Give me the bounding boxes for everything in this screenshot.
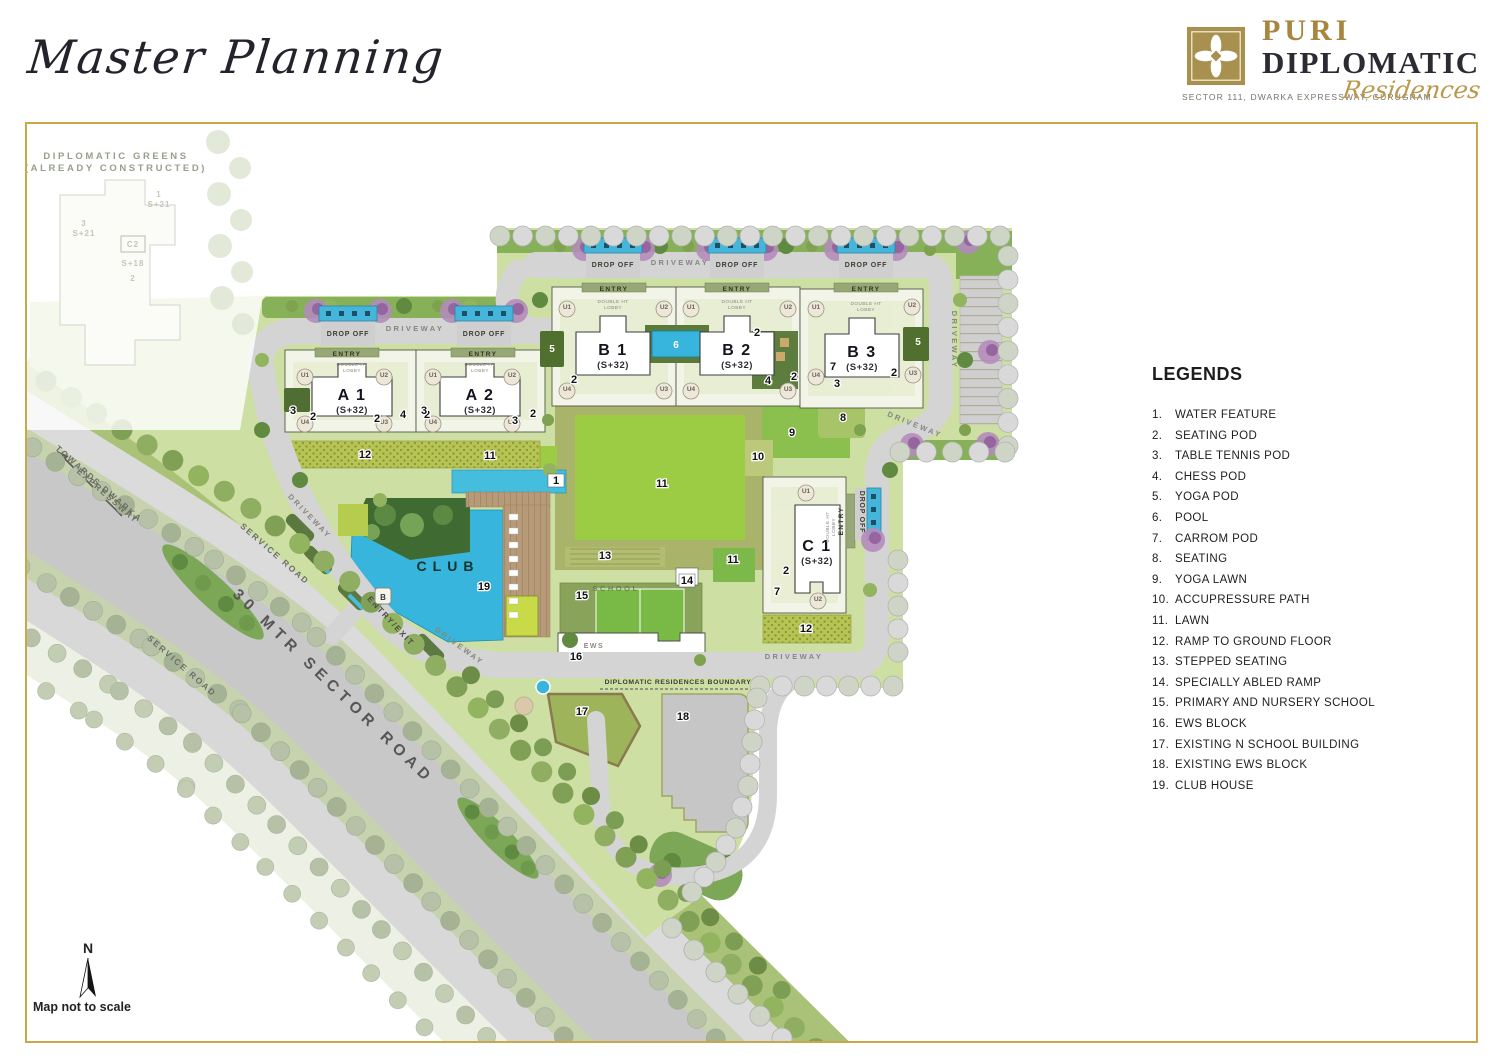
master-planning-page: Master Planning PURI DIPLOMATIC SECTOR 1… xyxy=(0,0,1500,1061)
legend-item: 15.PRIMARY AND NURSERY SCHOOL xyxy=(1152,693,1452,714)
page-title: Master Planning xyxy=(25,30,447,84)
map-label: 2 xyxy=(530,408,536,420)
map-label: 7 xyxy=(774,586,780,598)
map-label: DROP OFF xyxy=(858,491,865,533)
map-label: 10 xyxy=(752,451,764,463)
north-compass xyxy=(80,958,96,997)
map-label: 2 xyxy=(791,371,797,383)
map-label: 3 xyxy=(512,415,518,427)
map-label: CLUB xyxy=(417,558,480,574)
map-label: U4 xyxy=(687,386,696,393)
map-label: DOUBLE HT xyxy=(336,362,367,368)
map-label: ENTRY xyxy=(723,286,752,293)
map-label: 4 xyxy=(400,409,407,421)
map-label: LOBBY xyxy=(831,518,837,536)
map-label: ENTRY xyxy=(600,286,629,293)
map-label: ENTRY xyxy=(469,351,498,358)
map-label: 1 xyxy=(553,475,559,487)
map-label: 2 xyxy=(571,374,577,386)
map-label: U1 xyxy=(812,304,821,311)
map-label: DOUBLE HT xyxy=(721,299,752,305)
map-label: U2 xyxy=(908,302,917,309)
legend-item: 7.CARROM POD xyxy=(1152,529,1452,550)
map-label: ENTRY xyxy=(838,507,845,536)
legend-item: 14.SPECIALLY ABLED RAMP xyxy=(1152,673,1452,694)
brand-flower-icon xyxy=(1186,26,1246,86)
map-label: (ALREADY CONSTRUCTED) xyxy=(27,163,207,174)
map-label: A 2 xyxy=(466,387,495,404)
legend-item: 6.POOL xyxy=(1152,508,1452,529)
map-label: Map not to scale xyxy=(33,1000,131,1014)
brand-logo: PURI DIPLOMATIC SECTOR 111, DWARKA EXPRE… xyxy=(1180,12,1480,108)
legend-item: 5.YOGA POD xyxy=(1152,487,1452,508)
map-label: 3 xyxy=(81,219,86,228)
map-label: DIPLOMATIC RESIDENCES BOUNDARY xyxy=(605,679,752,686)
map-label: B 2 xyxy=(722,342,751,359)
map-label: S+21 xyxy=(148,200,171,209)
legend-item: 16.EWS BLOCK xyxy=(1152,714,1452,735)
map-label: DOUBLE HT xyxy=(850,301,881,307)
map-label: 3 xyxy=(421,405,427,417)
map-label: ENTRY xyxy=(852,286,881,293)
legend-item: 1.WATER FEATURE xyxy=(1152,405,1452,426)
map-label: SCHOOL xyxy=(592,584,639,593)
map-label: (S+32) xyxy=(801,556,833,567)
legend-item: 4.CHESS POD xyxy=(1152,467,1452,488)
legend-item: 19.CLUB HOUSE xyxy=(1152,776,1452,797)
map-label: DRIVEWAY xyxy=(386,324,445,333)
map-label: 11 xyxy=(656,478,668,490)
legend-title: LEGENDS xyxy=(1152,364,1452,385)
map-label: LOBBY xyxy=(728,305,746,311)
map-label: 12 xyxy=(800,623,812,635)
map-label: LOBBY xyxy=(604,305,622,311)
map-label: U1 xyxy=(687,304,696,311)
map-label: 16 xyxy=(570,651,582,663)
map-label: U1 xyxy=(563,304,572,311)
legend-item: 10.ACCUPRESSURE PATH xyxy=(1152,590,1452,611)
map-label: 5 xyxy=(915,337,921,348)
map-label: (S+32) xyxy=(846,362,878,373)
map-label: (S+32) xyxy=(721,360,753,371)
map-label: LOBBY xyxy=(343,368,361,374)
map-label: U4 xyxy=(301,419,310,426)
map-label: B xyxy=(380,593,386,602)
map-label: 19 xyxy=(478,581,490,593)
legend-item: 3.TABLE TENNIS POD xyxy=(1152,446,1452,467)
map-label: S+18 xyxy=(122,259,145,268)
map-label: ENTRY xyxy=(333,351,362,358)
map-label: (S+32) xyxy=(464,405,496,416)
map-label: U2 xyxy=(660,304,669,311)
map-label: U2 xyxy=(814,596,823,603)
brand-name-primary: PURI xyxy=(1262,14,1351,48)
map-label: U2 xyxy=(784,304,793,311)
map-label: U1 xyxy=(301,372,310,379)
map-label: DRIVEWAY xyxy=(651,258,710,267)
map-label: 2 xyxy=(310,411,316,423)
map-label: U1 xyxy=(802,488,811,495)
map-label: DIPLOMATIC GREENS xyxy=(43,151,188,162)
map-label: B 1 xyxy=(598,342,627,359)
map-label: U2 xyxy=(508,372,517,379)
legend-item: 8.SEATING xyxy=(1152,549,1452,570)
map-label: S+21 xyxy=(73,229,96,238)
map-label: U4 xyxy=(429,419,438,426)
map-label: DROP OFF xyxy=(845,262,887,269)
map-label: DOUBLE HT xyxy=(597,299,628,305)
map-label: 11 xyxy=(727,554,739,566)
map-label: DROP OFF xyxy=(327,331,369,338)
map-label: B 3 xyxy=(847,344,876,361)
map-label: U3 xyxy=(660,386,669,393)
map-label: DOUBLE HT xyxy=(825,511,831,542)
map-label: U2 xyxy=(380,372,389,379)
map-label: U3 xyxy=(380,419,389,426)
map-label: 17 xyxy=(576,706,588,718)
legend-list: 1.WATER FEATURE2.SEATING POD3.TABLE TENN… xyxy=(1152,405,1452,796)
map-label: C2 xyxy=(127,240,139,249)
map-label: 2 xyxy=(374,413,380,425)
map-label: 9 xyxy=(789,427,795,439)
map-label: U3 xyxy=(909,370,918,377)
map-label: DRIVEWAY xyxy=(950,311,959,370)
map-label: DROP OFF xyxy=(592,262,634,269)
map-label: 2 xyxy=(130,274,135,283)
map-label: U1 xyxy=(429,372,438,379)
legend-item: 12.RAMP TO GROUND FLOOR xyxy=(1152,632,1452,653)
map-label: LOBBY xyxy=(857,307,875,313)
map-label: U4 xyxy=(812,372,821,379)
legend-item: 17.EXISTING N SCHOOL BUILDING xyxy=(1152,735,1452,756)
legend-item: 13.STEPPED SEATING xyxy=(1152,652,1452,673)
map-label: 14 xyxy=(681,575,694,587)
map-label: N xyxy=(83,940,93,956)
map-label: 12 xyxy=(359,449,371,461)
map-label: LOBBY xyxy=(471,368,489,374)
map-label: 2 xyxy=(783,565,789,577)
map-label: 11 xyxy=(484,450,496,462)
map-label: A 1 xyxy=(338,387,367,404)
map-label: EWS xyxy=(584,643,604,650)
map-label: DROP OFF xyxy=(463,331,505,338)
map-label: 7 xyxy=(830,361,836,373)
map-label: 3 xyxy=(290,405,296,417)
legend-item: 2.SEATING POD xyxy=(1152,426,1452,447)
map-label: (S+32) xyxy=(336,405,368,416)
map-label: 3 xyxy=(834,378,840,390)
legend-item: 11.LAWN xyxy=(1152,611,1452,632)
map-label: 4 xyxy=(765,375,772,387)
map-label: 13 xyxy=(599,550,611,562)
map-label: 15 xyxy=(576,590,588,602)
map-label: (S+32) xyxy=(597,360,629,371)
map-label: 6 xyxy=(673,340,679,351)
map-label: 1 xyxy=(156,190,161,199)
map-label: DOUBLE HT xyxy=(464,362,495,368)
map-label: DROP OFF xyxy=(716,262,758,269)
map-label: DRIVEWAY xyxy=(765,652,824,661)
legend-item: 18.EXISTING EWS BLOCK xyxy=(1152,755,1452,776)
legend-item: 9.YOGA LAWN xyxy=(1152,570,1452,591)
brand-residences-script: Residences xyxy=(1341,76,1482,104)
map-label: 8 xyxy=(840,412,846,424)
map-label: 5 xyxy=(549,344,555,355)
map-label: U3 xyxy=(784,386,793,393)
map-label: 2 xyxy=(754,327,760,339)
legend-panel: LEGENDS 1.WATER FEATURE2.SEATING POD3.TA… xyxy=(1152,364,1452,796)
map-label: 2 xyxy=(891,367,897,379)
map-label: 18 xyxy=(677,711,689,723)
map-label: U4 xyxy=(563,386,572,393)
